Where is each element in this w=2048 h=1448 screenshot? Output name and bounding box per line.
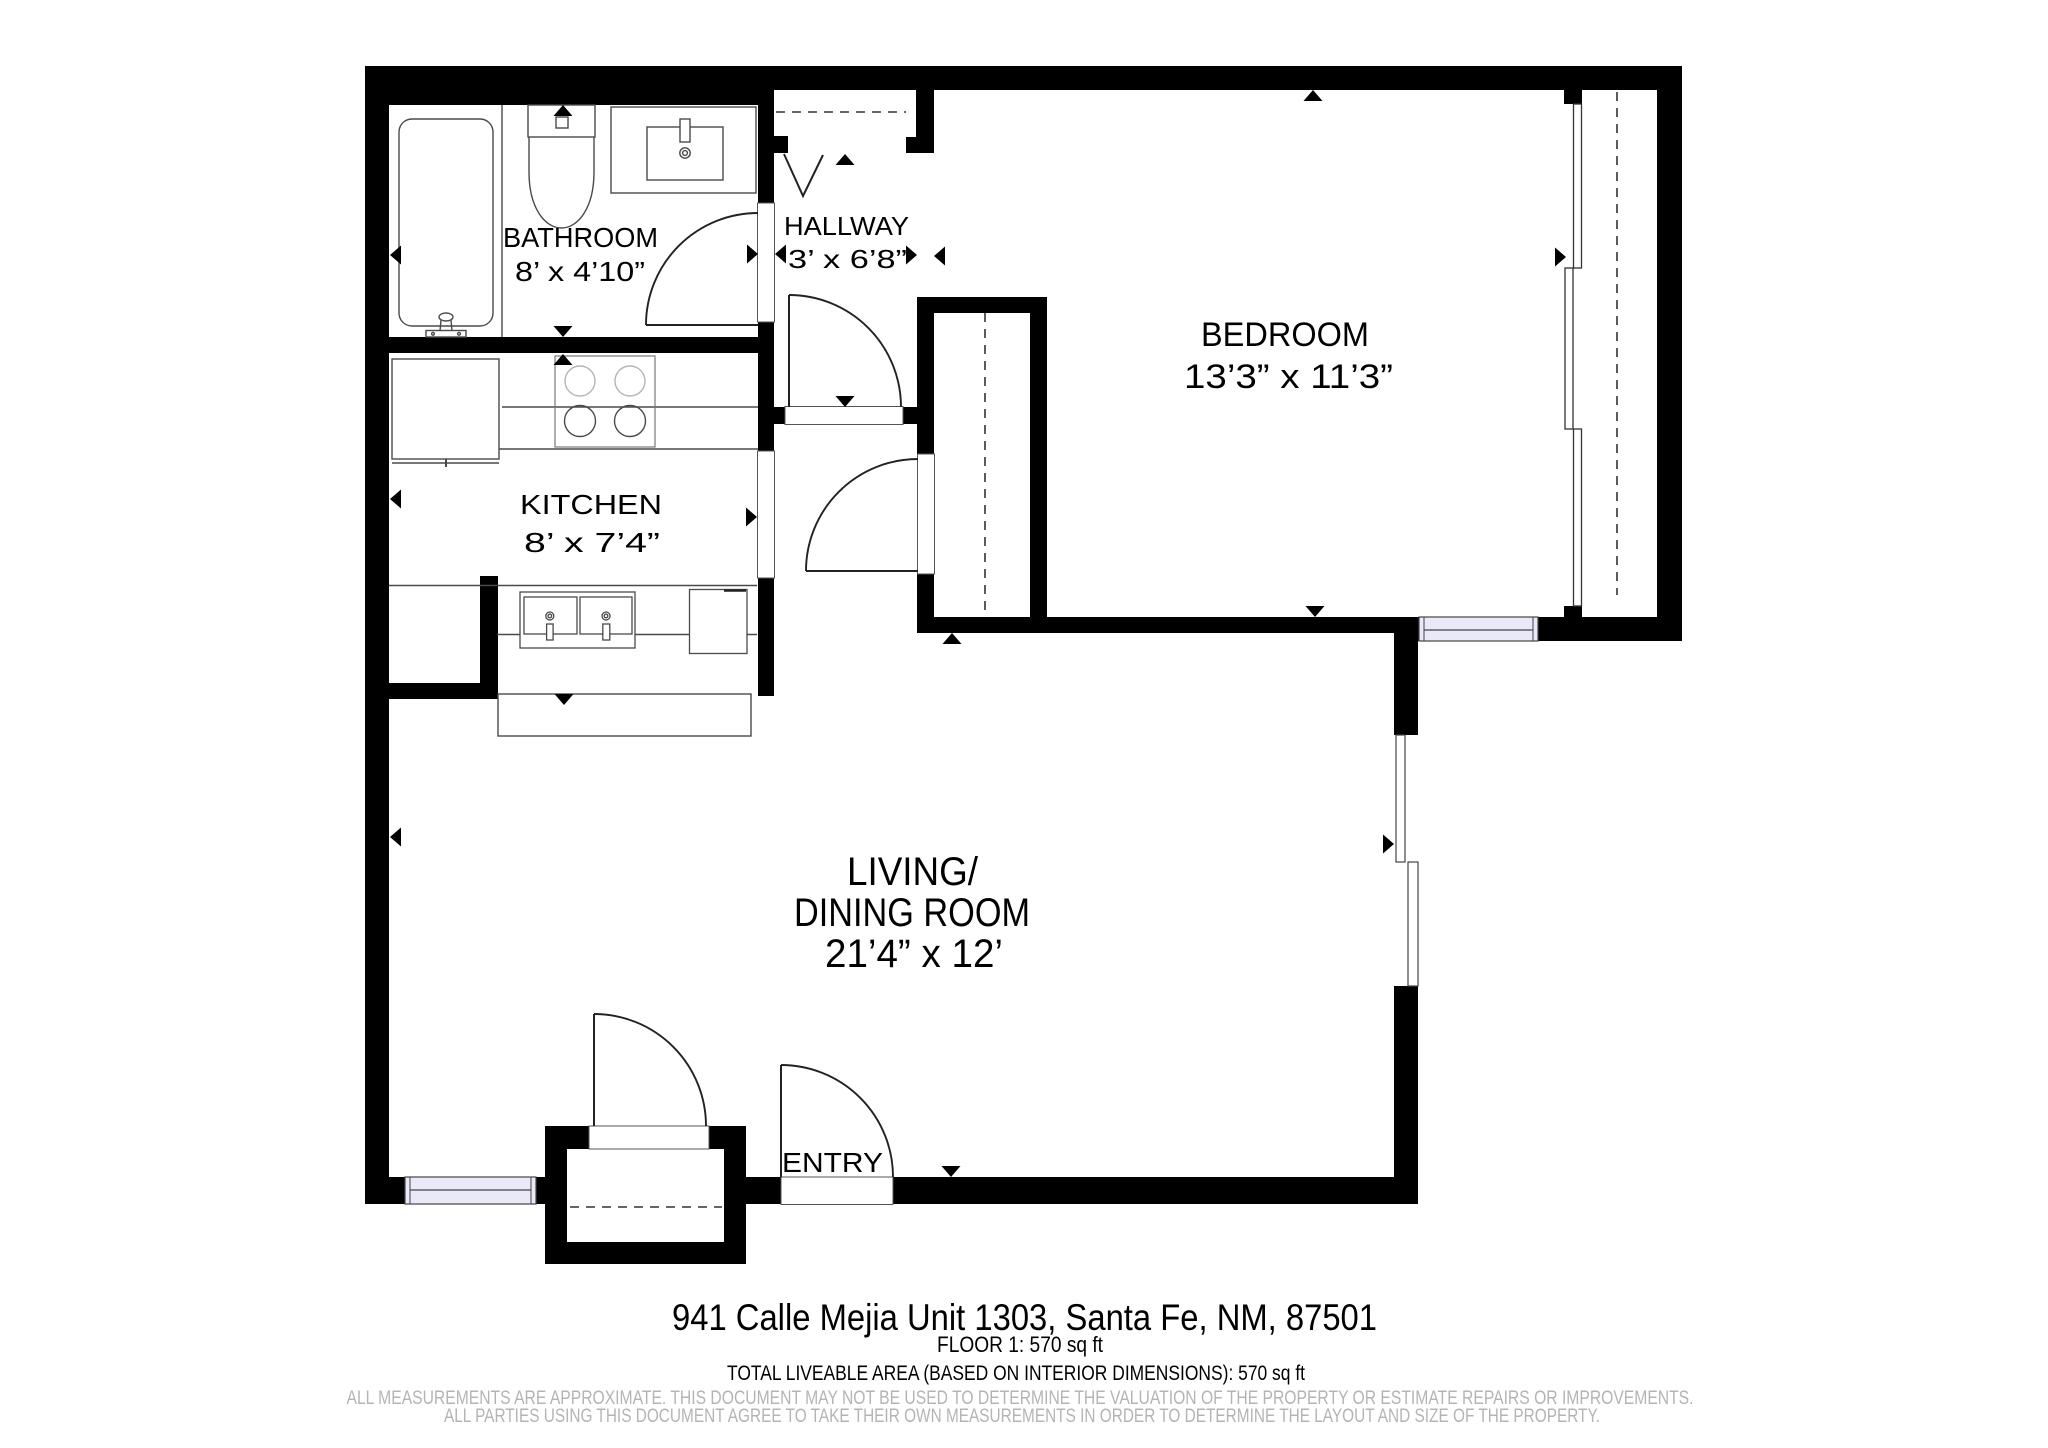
- svg-text:FLOOR 1: 570 sq ft: FLOOR 1: 570 sq ft: [937, 1332, 1103, 1357]
- svg-text:BATHROOM: BATHROOM: [503, 222, 658, 253]
- svg-text:ALL PARTIES USING THIS DOCUMEN: ALL PARTIES USING THIS DOCUMENT AGREE TO…: [444, 1405, 1600, 1427]
- svg-text:13’3” x 11’3”: 13’3” x 11’3”: [1184, 358, 1393, 396]
- svg-text:HALLWAY: HALLWAY: [784, 211, 909, 241]
- svg-text:ENTRY: ENTRY: [782, 1147, 883, 1178]
- svg-text:KITCHEN: KITCHEN: [520, 489, 662, 520]
- svg-text:8’ x 7’4”: 8’ x 7’4”: [524, 527, 660, 558]
- svg-text:LIVING/: LIVING/: [847, 850, 979, 894]
- svg-text:DINING ROOM: DINING ROOM: [794, 891, 1030, 935]
- svg-text:8’ x 4’10”: 8’ x 4’10”: [515, 256, 645, 287]
- svg-text:BEDROOM: BEDROOM: [1201, 316, 1369, 354]
- svg-text:TOTAL LIVEABLE AREA (BASED ON: TOTAL LIVEABLE AREA (BASED ON INTERIOR D…: [727, 1362, 1305, 1385]
- svg-text:3’ x 6’8”: 3’ x 6’8”: [788, 244, 907, 274]
- svg-text:21’4” x 12’: 21’4” x 12’: [825, 932, 1003, 976]
